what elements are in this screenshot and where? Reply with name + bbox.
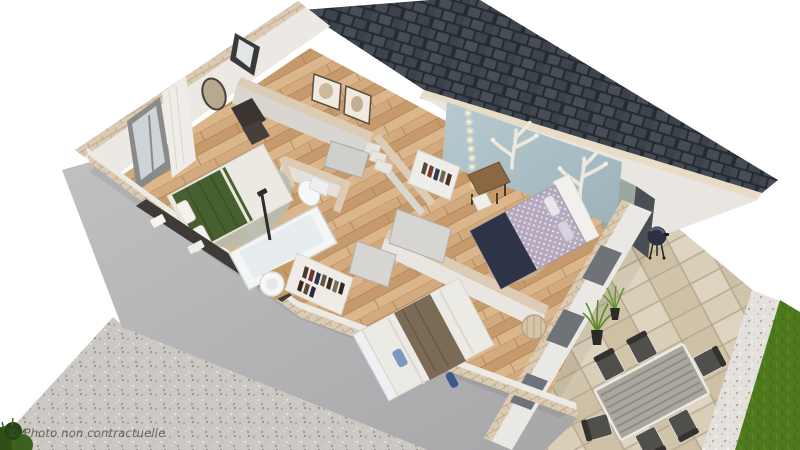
watermark-text: © Photo non contractuelle — [8, 426, 165, 440]
render-canvas: © Photo non contractuelle — [0, 0, 800, 450]
picture-art-1 — [319, 83, 333, 99]
picture-art-2 — [351, 96, 363, 112]
round-sink-bowl — [266, 278, 278, 290]
floor-plan-render: © Photo non contractuelle — [0, 0, 800, 450]
